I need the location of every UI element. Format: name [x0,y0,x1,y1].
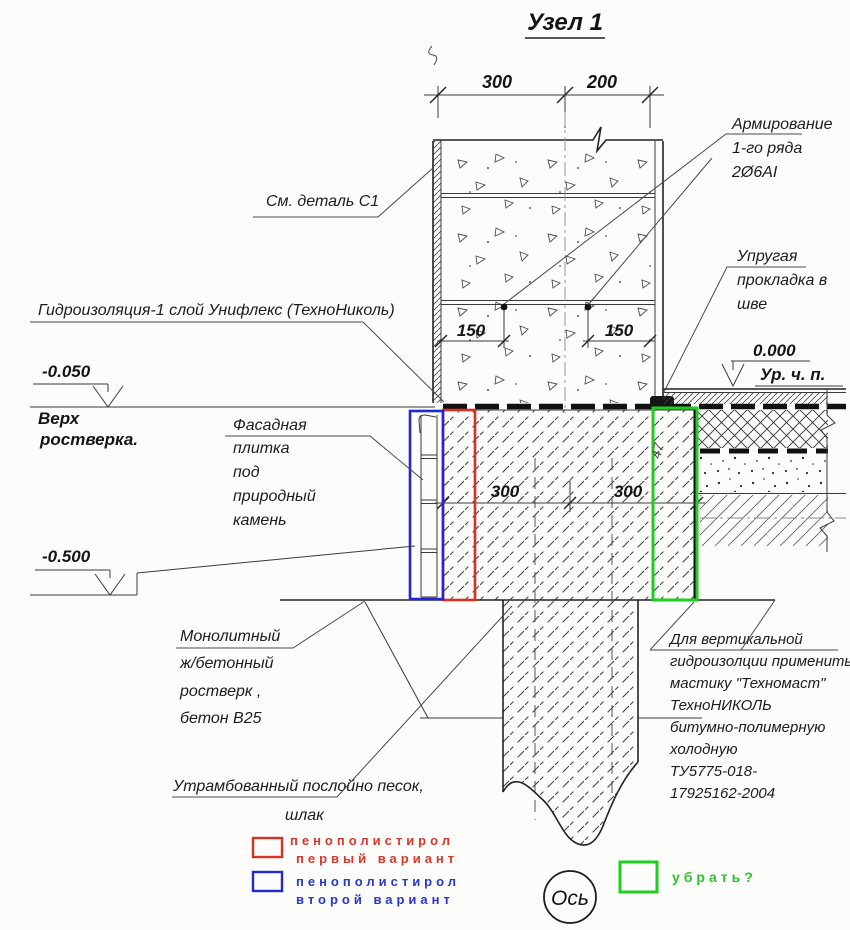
facade-line4: природный [233,488,316,505]
facade-label: Фасадная плитка под природный камень [225,417,423,529]
pencil-mark [429,46,437,65]
mastic-label: Для вертикальной гидроизолции применить … [650,600,850,802]
legend: пенополистирол первый вариант пенополист… [253,833,757,907]
sand-line1: Утрамбованный послойно песок, [172,778,424,795]
level-500-value: -0.500 [42,547,91,566]
level-050-sub2: ростверка. [39,430,138,449]
legend-swatch-variant1 [253,838,282,857]
facade-line1: Фасадная [233,417,307,434]
legend-variant2-line2: второй вариант [296,892,454,907]
legend-variant2-line1: пенополистирол [296,874,460,889]
pile-section [503,600,638,850]
see-detail-label: См. деталь С1 [253,168,433,217]
reinforcement-line2: 1-го ряда [732,140,802,157]
facade-tile [419,415,437,597]
dim-200-top: 200 [586,72,617,92]
dim-150-right: 150 [605,321,634,340]
legend-swatch-remove [620,862,657,892]
facade-line5: камень [233,512,287,529]
drawing-page: Узел 1 300 200 [0,0,850,930]
grillage-label: Монолитный ж/бетонный ростверк , бетон В… [176,601,365,727]
reinforcement-line1: Армирование [731,116,833,133]
legend-variant1-line2: первый вариант [296,851,458,866]
mastic-line5: битумно-полимерную [670,719,825,736]
mastic-line2: гидроизолции применить [670,653,850,670]
rebar-dot-left [501,304,508,311]
sand-line2: шлак [285,807,325,824]
legend-remove-label: убрать? [672,869,757,885]
axis-label: Ось [551,887,589,910]
dim-150-left: 150 [457,321,486,340]
level-zero: 0.000 Ур. ч. п. [722,341,843,386]
level-050-sub1: Верх [38,409,81,428]
dim-300-top: 300 [482,72,512,92]
tile-anchor-hook [419,415,436,433]
grillage-line4: бетон В25 [180,710,262,727]
foam-variant2-outline [410,411,443,599]
dim-300-grillage-left: 300 [491,482,520,501]
screed-layer [663,393,828,404]
concrete-prep-layer [697,454,828,492]
dim-300-grillage-right: 300 [614,482,643,501]
detail-drawing-uzel-1: Узел 1 300 200 [0,0,850,930]
insulation-layer [697,410,828,448]
mastic-line6: холодную [669,741,737,758]
see-detail-text: См. деталь С1 [266,193,379,210]
level-minus-500: -0.500 [35,547,125,595]
elastic-line3: шве [737,296,767,313]
level-zero-value: 0.000 [753,341,796,360]
elastic-line1: Упругая [736,248,798,265]
facade-line3: под [233,464,260,481]
grillage-line2: ж/бетонный [179,655,274,672]
level-050-value: -0.050 [42,362,91,381]
legend-swatch-variant2 [253,872,282,891]
elastic-line2: прокладка в [737,272,827,289]
waterproofing-text: Гидроизоляция-1 слой Унифлекс (ТехноНико… [38,302,395,319]
mastic-line4: ТехноНИКОЛЬ [670,697,772,714]
soil-under-floor [700,495,828,546]
mastic-line3: мастику "Техномаст" [670,675,826,692]
axis-bubble: Ось [544,871,596,923]
mastic-line1: Для вертикальной [668,631,803,648]
wall-section [433,112,663,413]
top-dimension-chain: 300 200 [424,72,664,128]
title-text: Узел 1 [527,9,603,36]
grillage-line1: Монолитный [180,628,280,645]
mastic-line8: 17925162-2004 [670,785,775,802]
drawing-title: Узел 1 [525,9,605,38]
grillage-line3: ростверк , [179,683,261,700]
mastic-line7: ТУ5775-018- [670,763,757,780]
reinforcement-line3: 2Ø6АI [731,164,778,181]
level-zero-sub: Ур. ч. п. [760,365,825,384]
legend-variant1-line1: пенополистирол [290,833,454,848]
facade-line2: плитка [233,440,290,457]
